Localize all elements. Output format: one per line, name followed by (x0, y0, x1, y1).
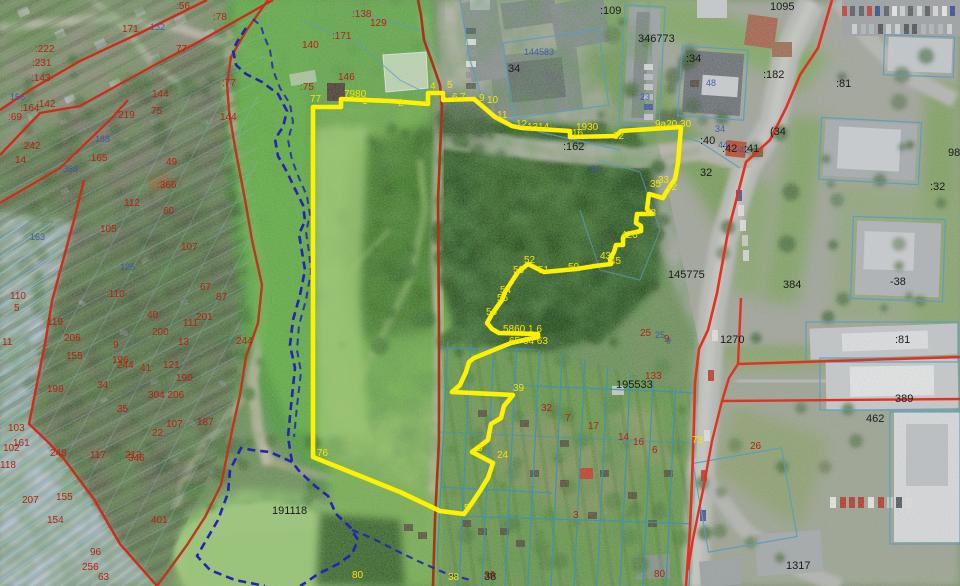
svg-text:201: 201 (196, 312, 213, 323)
svg-text:119: 119 (47, 317, 63, 328)
svg-text:76: 76 (317, 448, 329, 459)
svg-text:146: 146 (338, 72, 355, 83)
svg-text:401: 401 (151, 515, 168, 526)
svg-text::69: :69 (8, 112, 22, 123)
svg-text:12: 12 (516, 119, 528, 130)
svg-text::171: :171 (332, 31, 352, 42)
svg-text:103: 103 (8, 423, 25, 434)
svg-text::56: :56 (176, 1, 190, 12)
svg-text::32: :32 (930, 181, 945, 193)
svg-text:22: 22 (152, 428, 164, 439)
svg-text::75: :75 (300, 82, 314, 93)
svg-text:34: 34 (508, 63, 520, 75)
svg-text:25: 25 (655, 330, 665, 340)
svg-text:14: 14 (538, 122, 550, 133)
svg-text:5: 5 (464, 503, 470, 514)
svg-text:200: 200 (152, 327, 169, 338)
svg-text:5: 5 (447, 80, 453, 91)
svg-text:48: 48 (706, 78, 716, 88)
svg-text:207: 207 (22, 495, 39, 506)
svg-text:1317: 1317 (786, 560, 810, 572)
svg-text:132: 132 (150, 22, 165, 32)
svg-text::109: :109 (600, 5, 621, 17)
svg-text:32: 32 (700, 167, 712, 179)
svg-text:51: 51 (538, 265, 550, 276)
svg-text:168: 168 (95, 134, 110, 144)
svg-text::78: :78 (213, 12, 227, 23)
svg-text:110: 110 (10, 291, 26, 302)
svg-text:155: 155 (56, 492, 73, 503)
svg-text:195533: 195533 (616, 379, 653, 391)
svg-text:156: 156 (10, 92, 25, 102)
svg-text:67: 67 (200, 282, 212, 293)
svg-text::77: :77 (222, 78, 236, 89)
svg-text:3: 3 (477, 443, 483, 454)
svg-text:125: 125 (120, 262, 135, 272)
svg-text:26: 26 (750, 441, 762, 452)
svg-text:80: 80 (352, 570, 364, 581)
svg-text:206: 206 (64, 333, 81, 344)
svg-text::182: :182 (763, 69, 784, 81)
svg-text:7: 7 (565, 413, 571, 424)
svg-text:40: 40 (147, 310, 159, 321)
svg-text:219: 219 (118, 110, 135, 121)
svg-text:107: 107 (181, 242, 198, 253)
svg-text:9: 9 (113, 340, 119, 351)
svg-text:248: 248 (50, 448, 67, 459)
svg-text::42: :42 (722, 143, 737, 155)
svg-text:38: 38 (645, 208, 657, 219)
svg-text:42: 42 (666, 182, 678, 193)
svg-text:-38: -38 (890, 276, 906, 288)
svg-text::231: :231 (32, 58, 52, 69)
svg-text:(34: (34 (770, 126, 786, 138)
svg-text::40: :40 (700, 135, 715, 147)
svg-text:77: 77 (310, 94, 322, 105)
svg-text:11: 11 (2, 337, 13, 348)
svg-text:10: 10 (487, 95, 499, 106)
svg-text:346773: 346773 (638, 33, 675, 45)
svg-text:121: 121 (163, 360, 180, 371)
svg-text:17: 17 (588, 421, 600, 432)
svg-text:16: 16 (633, 437, 645, 448)
svg-text:191118: 191118 (272, 505, 307, 517)
svg-text:112: 112 (124, 198, 140, 209)
svg-text:9: 9 (479, 93, 485, 104)
svg-text:87: 87 (216, 292, 228, 303)
svg-text:38: 38 (448, 572, 460, 583)
svg-text:63: 63 (98, 572, 110, 583)
svg-text:73: 73 (692, 435, 704, 446)
svg-text:53: 53 (513, 265, 525, 276)
svg-text:105: 105 (100, 224, 117, 235)
svg-text:80: 80 (654, 569, 666, 580)
svg-text::138: :138 (352, 9, 372, 20)
svg-text:9a20 30: 9a20 30 (655, 119, 692, 130)
svg-text:50: 50 (568, 262, 580, 273)
svg-text:144: 144 (220, 112, 237, 123)
svg-text:2: 2 (398, 98, 404, 109)
svg-text:145775: 145775 (668, 269, 705, 281)
svg-text:39: 39 (513, 383, 525, 394)
svg-text:6: 6 (652, 445, 658, 456)
svg-text:155: 155 (66, 351, 83, 362)
svg-text:384: 384 (783, 279, 801, 291)
svg-text:32: 32 (613, 131, 625, 142)
svg-text:11: 11 (497, 110, 508, 121)
svg-text:144: 144 (152, 89, 169, 100)
svg-text:49: 49 (166, 157, 178, 168)
svg-text:24: 24 (497, 450, 509, 461)
svg-text:389: 389 (895, 393, 913, 405)
svg-text::164: :164 (20, 103, 40, 114)
svg-text:5: 5 (14, 303, 20, 314)
svg-text::81: :81 (895, 334, 910, 346)
svg-text:14: 14 (15, 155, 27, 166)
svg-text:190: 190 (176, 373, 193, 384)
svg-text:96: 96 (90, 547, 102, 558)
svg-text:55: 55 (497, 293, 509, 304)
svg-text:129: 129 (370, 18, 387, 29)
svg-text:1270: 1270 (720, 334, 744, 346)
svg-text:5860 1 6: 5860 1 6 (503, 324, 542, 335)
svg-text:38: 38 (484, 571, 496, 583)
svg-text:187: 187 (197, 417, 214, 428)
svg-text:6: 6 (452, 92, 458, 103)
svg-text:34: 34 (715, 124, 725, 134)
svg-text:52: 52 (524, 255, 536, 266)
svg-text:98: 98 (948, 147, 960, 159)
svg-text:368: 368 (63, 164, 78, 174)
svg-text:4: 4 (430, 81, 436, 92)
svg-text:13: 13 (178, 337, 190, 348)
svg-text:118: 118 (0, 460, 16, 471)
svg-text::81: :81 (836, 78, 851, 90)
svg-text::242: :242 (21, 141, 41, 152)
svg-text:163: 163 (30, 232, 45, 242)
svg-text:1: 1 (362, 96, 368, 107)
svg-text:346: 346 (128, 453, 145, 464)
svg-text:23: 23 (640, 92, 650, 102)
svg-text:256: 256 (82, 562, 99, 573)
svg-text:75: 75 (151, 106, 163, 117)
svg-text:35: 35 (117, 404, 129, 415)
svg-text:304 206: 304 206 (148, 390, 185, 401)
svg-text:1095: 1095 (770, 1, 794, 13)
svg-text:7: 7 (460, 92, 466, 103)
svg-text:56: 56 (486, 307, 498, 318)
svg-text:117: 117 (90, 450, 106, 461)
svg-text:9: 9 (666, 336, 671, 346)
svg-text:144583: 144583 (524, 47, 554, 57)
svg-text:45: 45 (610, 256, 622, 267)
svg-text:41: 41 (140, 363, 152, 374)
svg-text::366: :366 (157, 180, 177, 191)
svg-text:14: 14 (618, 432, 630, 443)
svg-text:34: 34 (97, 380, 109, 391)
svg-text:1930: 1930 (576, 122, 599, 133)
svg-text::222: :222 (35, 44, 55, 55)
svg-text:35: 35 (650, 179, 662, 190)
svg-text::110: :110 (106, 289, 125, 300)
svg-text:420: 420 (621, 230, 638, 241)
svg-text:462: 462 (866, 413, 884, 425)
svg-text:140: 140 (302, 40, 319, 51)
svg-text::41: :41 (744, 143, 759, 155)
svg-text:3: 3 (573, 510, 579, 521)
svg-text::34: :34 (686, 53, 701, 65)
svg-text:171: 171 (122, 24, 139, 35)
svg-text:244: 244 (236, 336, 253, 347)
svg-text:60: 60 (163, 206, 175, 217)
svg-text:65 64 63: 65 64 63 (509, 336, 548, 347)
svg-text:77: 77 (176, 44, 188, 55)
svg-text:25: 25 (640, 328, 652, 339)
svg-text:13: 13 (527, 122, 539, 133)
svg-text::143: :143 (31, 73, 51, 84)
svg-text:198: 198 (47, 384, 64, 395)
svg-text::162: :162 (563, 141, 584, 153)
svg-text::165: :165 (88, 153, 108, 164)
svg-text:107: 107 (166, 419, 183, 430)
svg-text:244: 244 (117, 360, 134, 371)
svg-text:32: 32 (541, 403, 553, 414)
svg-text:154: 154 (47, 515, 64, 526)
svg-text:34: 34 (590, 164, 600, 174)
svg-text:102: 102 (3, 443, 20, 454)
